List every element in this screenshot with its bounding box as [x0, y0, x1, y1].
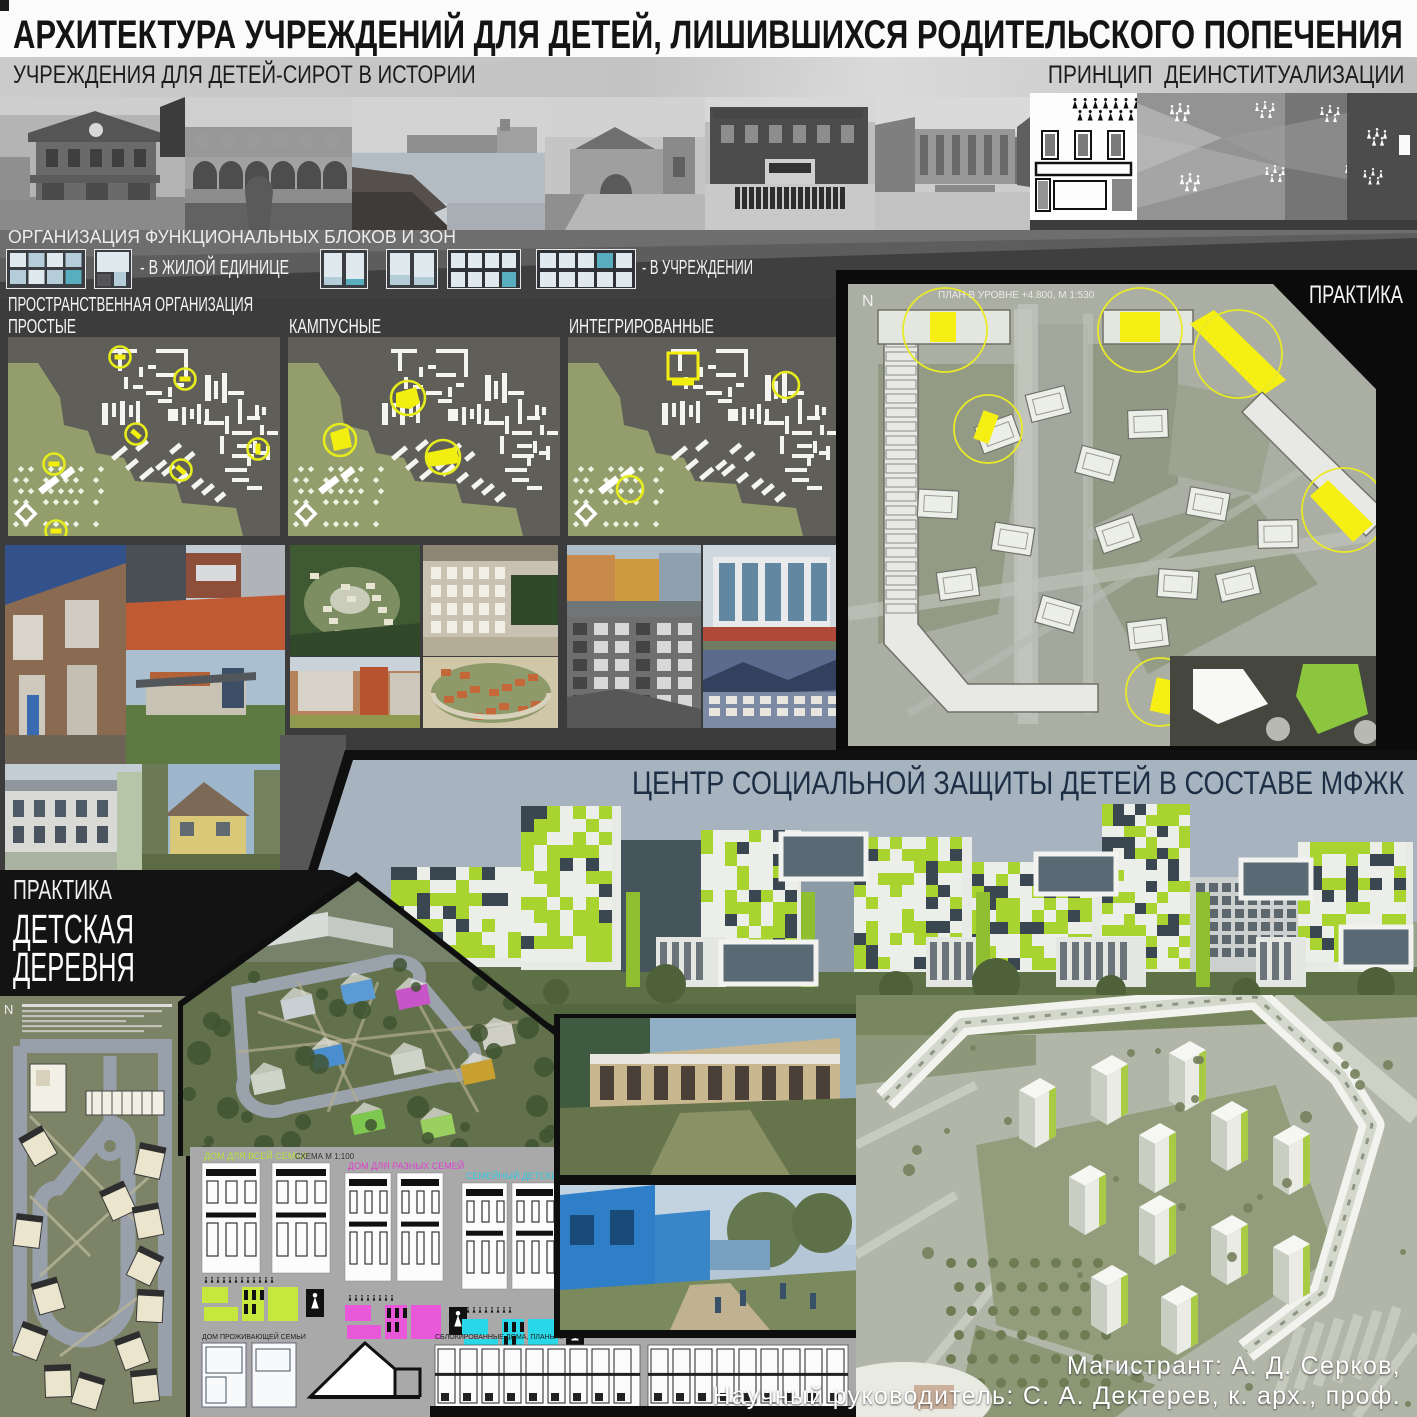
svg-text:ДОМ ПРОЖИВАЮЩЕЙ СЕМЬИ: ДОМ ПРОЖИВАЮЩЕЙ СЕМЬИ [202, 1332, 306, 1341]
svg-text:N: N [862, 293, 874, 310]
svg-text:СХЕМА М 1:100: СХЕМА М 1:100 [295, 1152, 355, 1161]
svg-text:ДОМ ДЛЯ ВСЕЙ СЕМЬИ: ДОМ ДЛЯ ВСЕЙ СЕМЬИ [204, 1150, 308, 1161]
svg-text:N: N [4, 1002, 13, 1017]
svg-text:ДОМ ДЛЯ РАЗНЫХ СЕМЕЙ: ДОМ ДЛЯ РАЗНЫХ СЕМЕЙ [348, 1160, 464, 1171]
svg-text:ПЛАН В УРОВНЕ +4.800, М 1:530: ПЛАН В УРОВНЕ +4.800, М 1:530 [938, 290, 1095, 301]
